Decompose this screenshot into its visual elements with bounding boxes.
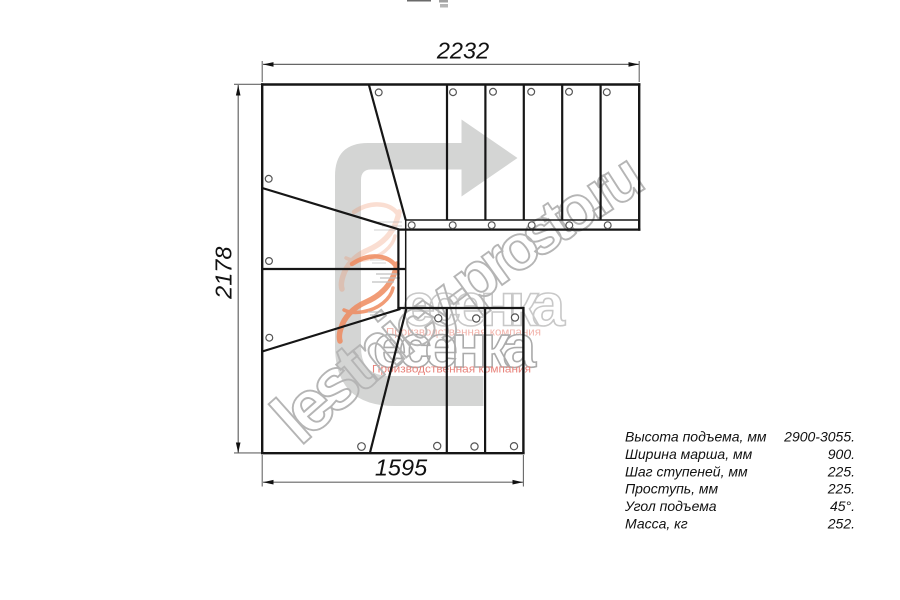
- svg-text:Угол подъема: Угол подъема: [624, 498, 717, 514]
- svg-text:2900-3055.: 2900-3055.: [783, 429, 855, 445]
- svg-text:Проступь, мм: Проступь, мм: [625, 481, 719, 497]
- svg-text:900.: 900.: [828, 446, 855, 462]
- svg-text:225.: 225.: [827, 481, 855, 497]
- svg-text:Ширина марша, мм: Ширина марша, мм: [625, 446, 753, 462]
- svg-text:225.: 225.: [827, 463, 855, 479]
- svg-text:45°.: 45°.: [830, 498, 855, 514]
- svg-text:Шаг ступеней, мм: Шаг ступеней, мм: [625, 463, 748, 479]
- svg-text:1595: 1595: [375, 455, 428, 481]
- svg-text:lestnicy-prosto.ru: lestnicy-prosto.ru: [257, 141, 653, 459]
- svg-text:Высота подъема, мм: Высота подъема, мм: [625, 429, 767, 445]
- svg-text:252.: 252.: [827, 515, 855, 531]
- svg-text:2178: 2178: [211, 247, 237, 300]
- svg-text:2232: 2232: [436, 38, 489, 64]
- svg-text:Масса, кг: Масса, кг: [625, 515, 688, 531]
